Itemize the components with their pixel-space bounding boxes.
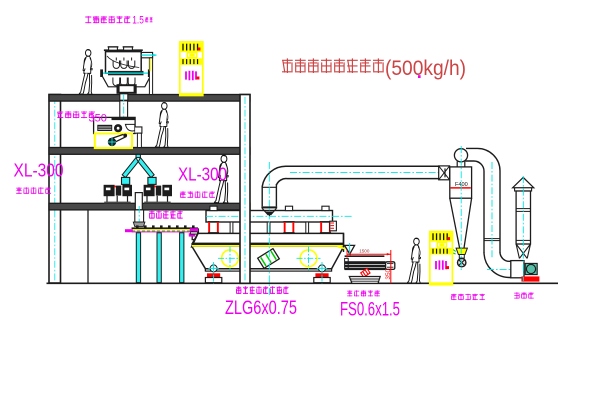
svg-text:XL-300: XL-300 — [178, 165, 227, 185]
svg-text:1500: 1500 — [359, 249, 370, 255]
svg-text:XL-300: XL-300 — [14, 161, 64, 181]
svg-text:ZLG6x0.75: ZLG6x0.75 — [225, 298, 297, 319]
svg-text:1.5: 1.5 — [132, 15, 144, 27]
svg-text:FS0.6x1.5: FS0.6x1.5 — [340, 300, 400, 321]
svg-text:(500kg/h): (500kg/h) — [385, 56, 466, 80]
svg-text:350: 350 — [385, 268, 392, 279]
svg-text:350: 350 — [89, 113, 107, 125]
